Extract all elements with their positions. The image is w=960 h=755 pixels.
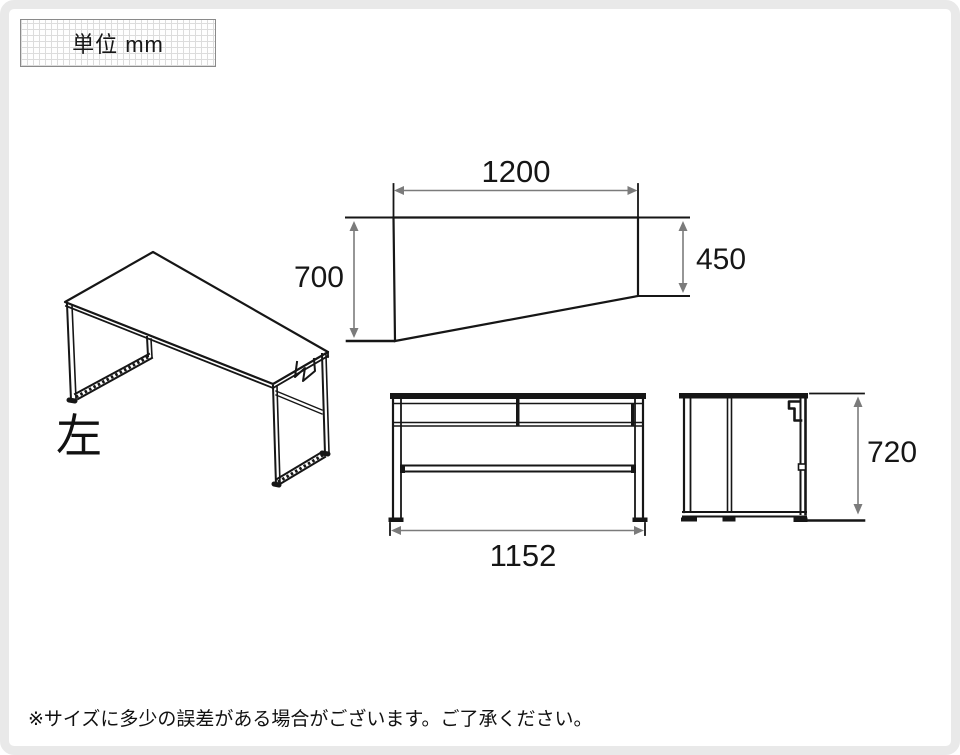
hook-icon-side: [789, 402, 801, 421]
tolerance-note: ※サイズに多少の誤差がある場合がございます。ご了承ください。: [28, 704, 592, 731]
orientation-label: 左: [56, 413, 102, 459]
top-view-drawing: [346, 184, 689, 341]
dim-frame-height-label: 720: [867, 438, 917, 468]
dim-top-width-label: 1200: [466, 156, 566, 187]
side-view-drawing: [679, 393, 864, 522]
front-view-drawing: [389, 393, 648, 535]
dim-depth-left-label: 700: [284, 263, 344, 293]
dim-700: [346, 218, 394, 342]
dim-frame-width-label: 1152: [473, 540, 573, 571]
dim-1152: [390, 523, 645, 535]
dim-depth-right-label: 450: [696, 245, 746, 275]
dim-720: [803, 394, 864, 521]
diagram-canvas: [0, 0, 960, 755]
dim-450: [639, 218, 689, 297]
